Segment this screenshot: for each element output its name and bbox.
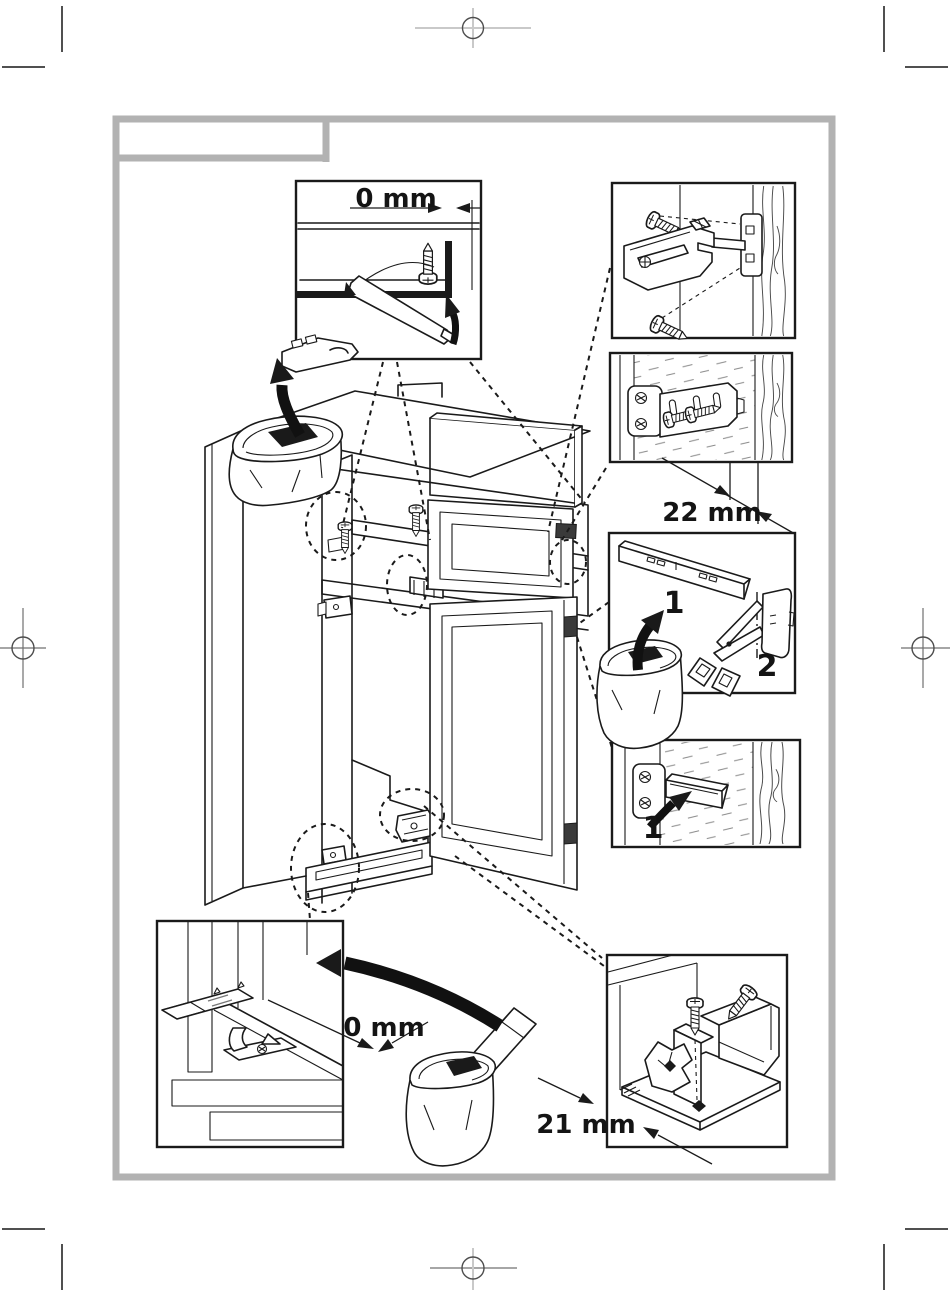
parts-bag-bottom — [406, 1008, 536, 1166]
manual-page: 0 mm — [0, 0, 950, 1296]
label-cap-part: 2 — [757, 649, 778, 684]
door-hinge-block — [564, 616, 577, 637]
inset-bottom-hinge: 0 mm — [157, 921, 428, 1147]
installation-diagram: 0 mm — [0, 0, 950, 1296]
label-top-gap: 0 mm — [355, 184, 436, 214]
inset-bracket-offset: 22 mm — [610, 353, 795, 534]
parts-bag-top — [229, 416, 342, 505]
registration-mark-top — [415, 8, 531, 48]
label-bracket-offset: 22 mm — [662, 498, 761, 528]
inset-rail-cover: 1 — [612, 740, 800, 847]
trim-end-cap — [762, 589, 794, 658]
registration-mark-left — [0, 608, 46, 688]
inset-top-hinge: 0 mm — [282, 181, 481, 372]
door-hinge-block — [564, 823, 577, 844]
label-rail-part: 1 — [664, 586, 685, 621]
cover-bracket-plate — [633, 764, 665, 818]
rotate-arrow — [452, 312, 456, 344]
label-base-offset: 21 mm — [536, 1110, 635, 1140]
registration-mark-right — [901, 608, 950, 688]
frame-tab — [116, 119, 329, 162]
inset-base-bracket: 21 mm — [536, 955, 787, 1164]
screw-icon — [409, 505, 423, 537]
label-cover-part: 1 — [643, 811, 664, 846]
label-bottom-gap: 0 mm — [343, 1013, 424, 1043]
registration-mark-bottom — [430, 1248, 517, 1290]
inset-upper-bracket — [612, 183, 795, 346]
